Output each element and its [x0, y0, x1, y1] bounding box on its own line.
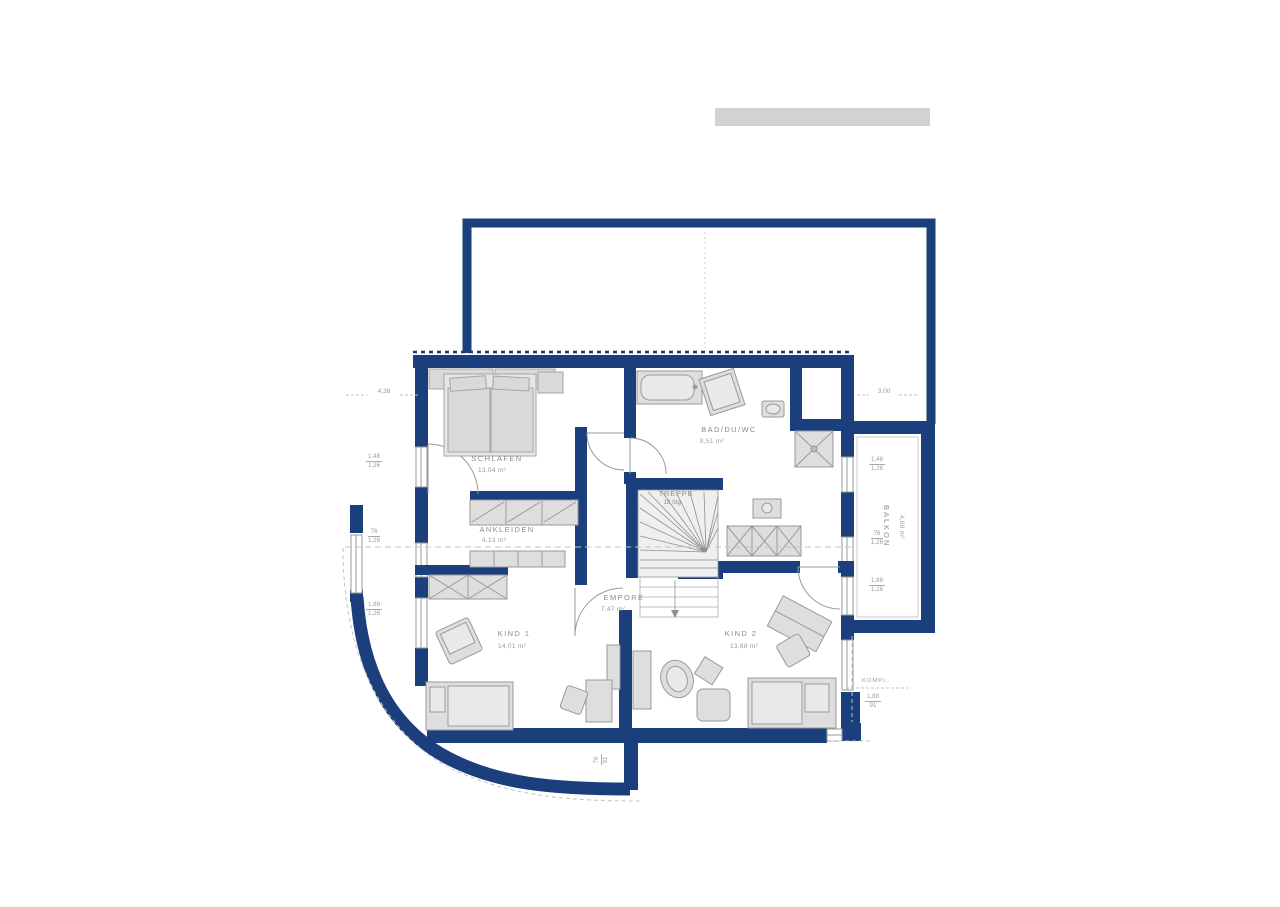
toilet [762, 401, 784, 417]
desk-chair [560, 685, 589, 715]
room-label-kind2: KIND 2 [725, 629, 758, 638]
dim-note-komplett: KOMPL. [862, 678, 890, 684]
staircase [638, 490, 718, 618]
dim-value: 91 [870, 702, 877, 709]
furniture-kind2 [633, 596, 836, 728]
shower [795, 431, 833, 467]
sideboard-x [727, 526, 801, 556]
dim-window-right-2: 76 1,26 [871, 530, 883, 546]
room-label-ankleiden: ANKLEIDEN [479, 525, 534, 534]
dim-value: 1,26 [368, 462, 380, 469]
shelf-row [470, 551, 565, 567]
dim-value: 1,26 [368, 610, 380, 617]
room-label-bad: BAD/DU/WC [701, 425, 757, 434]
floor-plan-page: SCHLAFEN 13,04 m² ANKLEIDEN 4,13 m² BAD/… [0, 0, 1280, 907]
dim-value: 1,26 [368, 537, 380, 544]
side-table [753, 499, 781, 518]
room-area-kind2: 13,88 m² [730, 643, 758, 650]
dim-top-left: 4,38 [378, 388, 391, 395]
double-bed [444, 374, 536, 456]
room-area-schlafen: 13,04 m² [478, 467, 506, 474]
room-area-ankleiden: 4,13 m² [482, 537, 506, 544]
stool [697, 689, 730, 721]
bed [748, 678, 836, 728]
dim-value: 1,26 [871, 539, 883, 546]
room-label-empore: EMPORE [604, 593, 645, 602]
room-label-kind1: KIND 1 [498, 629, 531, 638]
bed [426, 682, 513, 730]
room-label-balkon: BALKON [882, 505, 891, 547]
dim-value: 76 [871, 530, 883, 539]
room-area-bad: 8,51 m² [700, 438, 724, 445]
room-area-kind1: 14,01 m² [498, 643, 526, 650]
washbasin-cabinet [699, 368, 745, 415]
dim-window-right-3: 1,88 1,26 [869, 577, 885, 593]
armchair [435, 617, 483, 665]
closet-x [429, 575, 507, 599]
shelf [633, 651, 651, 709]
dim-value: 1,26 [871, 465, 883, 472]
room-area-balkon: 4,68 m² [898, 515, 904, 539]
dim-window-left-3: 1,88 1,26 [366, 601, 382, 617]
dim-value: 1,48 [366, 453, 382, 462]
desk [586, 680, 612, 722]
dim-value: 76 [593, 755, 602, 766]
floor-plan-drawing [0, 0, 1280, 907]
dim-window-right-1: 1,48 1,26 [869, 456, 885, 472]
treppe-steps: 18 Stg. [663, 500, 682, 506]
bathtub [637, 371, 702, 404]
wardrobe-row [470, 500, 578, 525]
room-area-empore: 7,47 m² [601, 606, 625, 613]
room-label-treppe: TREPPE [659, 489, 694, 498]
dim-value: 1,88 [366, 601, 382, 610]
dim-value: 91 [602, 757, 609, 764]
door-bad [630, 438, 666, 474]
room-label-schlafen: SCHLAFEN [471, 454, 522, 463]
dim-value: 1,26 [871, 586, 883, 593]
furniture-bad [637, 368, 833, 467]
door-schlafen [587, 433, 624, 470]
pouf [655, 656, 698, 703]
dim-window-bottom-right: 1,88 91 [865, 693, 881, 709]
furniture-schlafen [429, 369, 563, 456]
dim-window-left-2: 76 1,26 [368, 528, 380, 544]
dim-window-bottom: 76 91 [593, 755, 609, 766]
dim-window-left-1: 1,48 1,26 [366, 453, 382, 469]
cabinet [538, 372, 563, 393]
dim-value: 1,48 [869, 456, 885, 465]
cushion [694, 657, 722, 685]
dim-top-right: 3,00 [878, 388, 891, 395]
dim-value: 1,88 [869, 577, 885, 586]
door-kind2 [798, 567, 840, 609]
dim-value: 76 [368, 528, 380, 537]
dim-value: 1,88 [865, 693, 881, 702]
furniture-ankleiden [429, 500, 578, 599]
